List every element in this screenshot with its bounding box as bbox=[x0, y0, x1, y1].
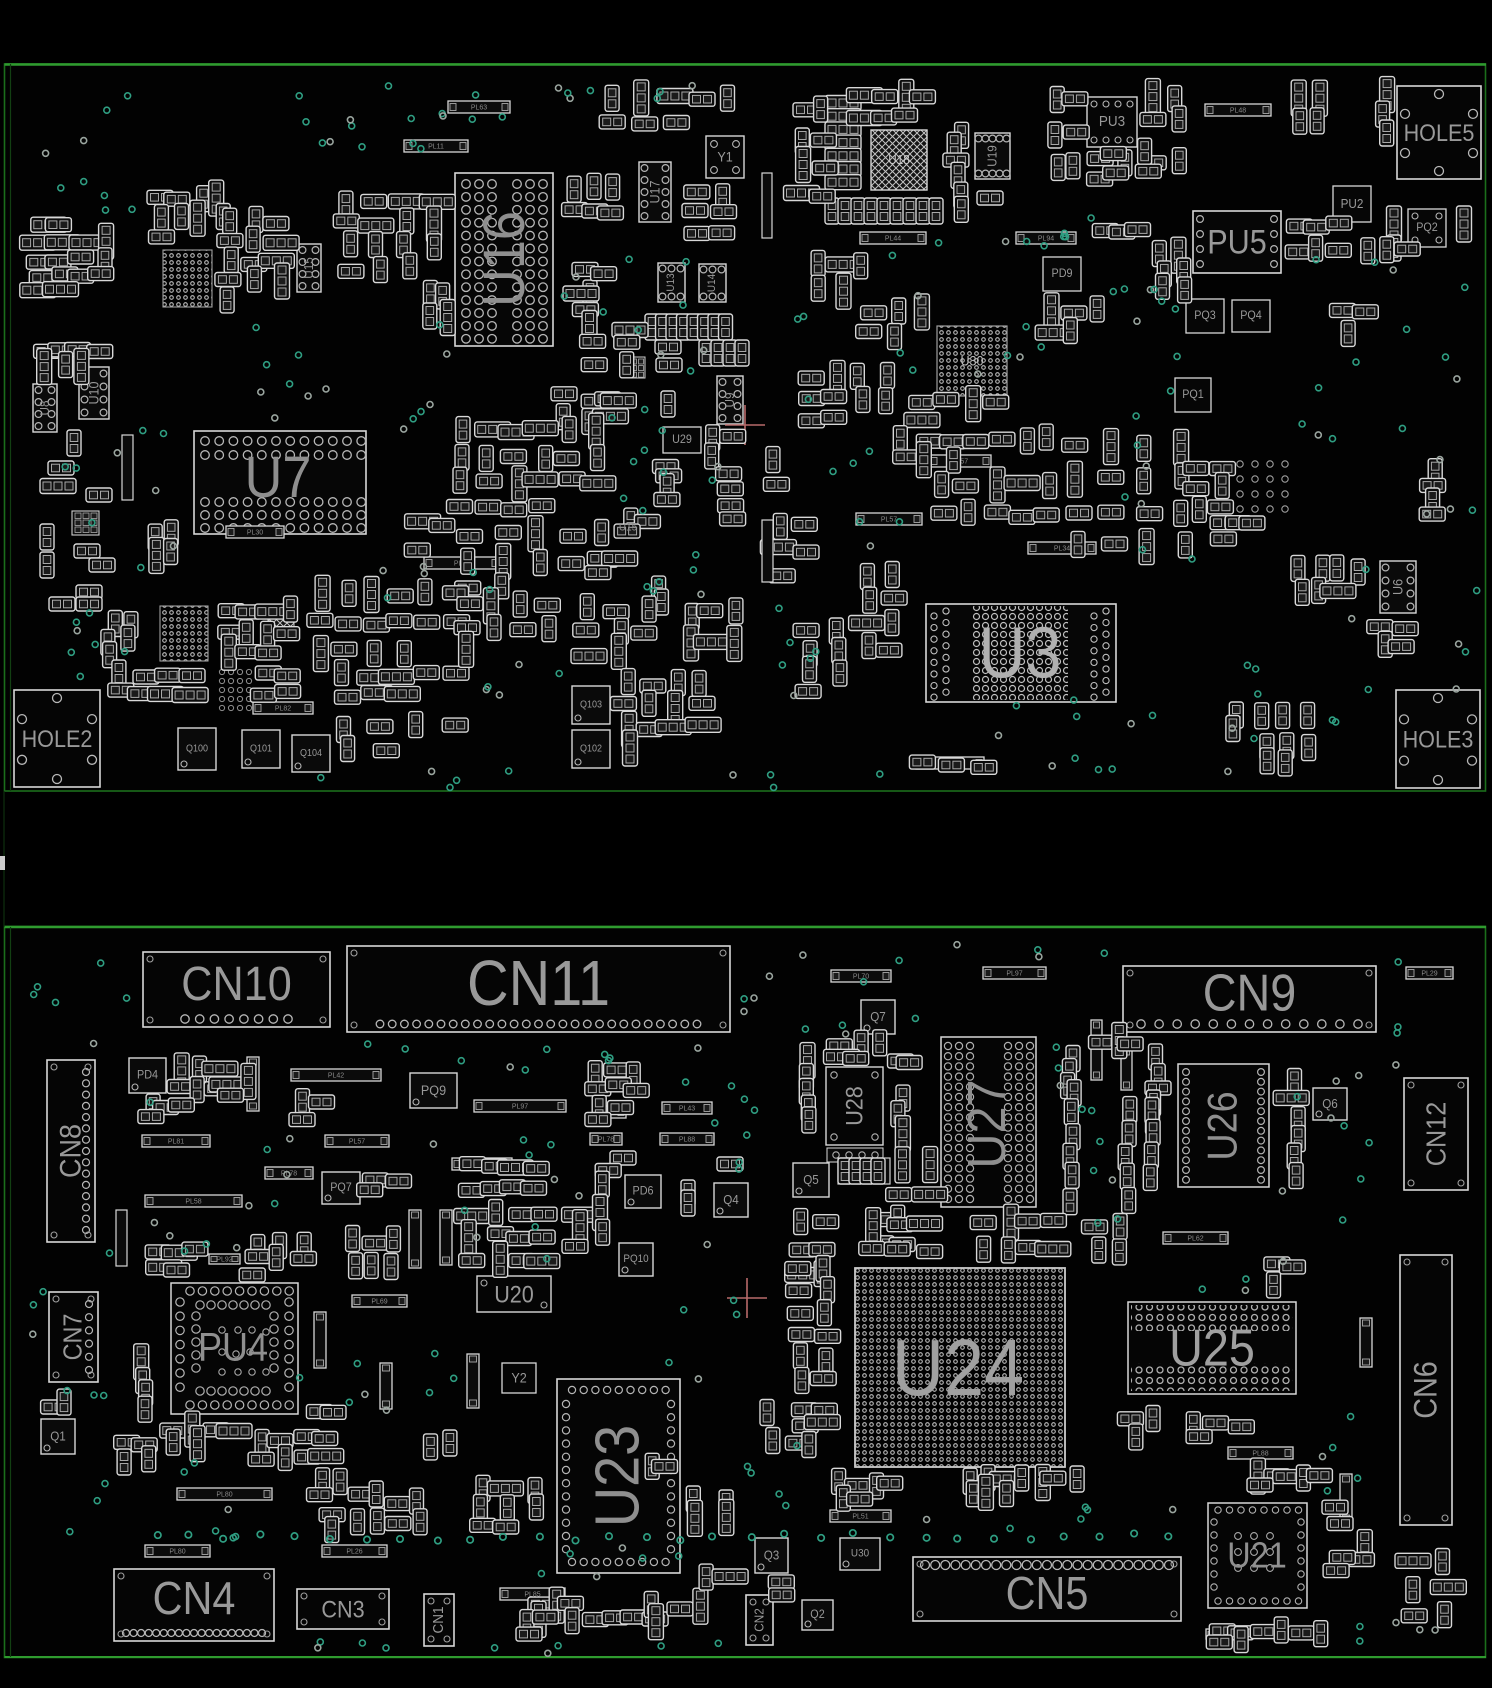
svg-text:PL26: PL26 bbox=[346, 1549, 362, 1556]
svg-text:PL62: PL62 bbox=[1187, 1236, 1203, 1243]
svg-text:PL11: PL11 bbox=[428, 144, 444, 151]
svg-text:PU3: PU3 bbox=[1099, 114, 1125, 131]
svg-text:U29: U29 bbox=[672, 434, 692, 447]
svg-text:U21: U21 bbox=[1227, 1536, 1286, 1576]
svg-text:CN6: CN6 bbox=[1408, 1361, 1444, 1419]
svg-text:Q101: Q101 bbox=[250, 743, 272, 755]
svg-text:CN1: CN1 bbox=[431, 1606, 448, 1633]
svg-text:PQ1: PQ1 bbox=[1182, 389, 1204, 402]
svg-text:PL78: PL78 bbox=[598, 1137, 614, 1144]
svg-text:PU5: PU5 bbox=[1207, 223, 1266, 261]
svg-text:CN10: CN10 bbox=[181, 957, 291, 1011]
svg-text:PD9: PD9 bbox=[1051, 268, 1072, 281]
svg-text:PL48: PL48 bbox=[1230, 108, 1246, 115]
svg-text:Q7: Q7 bbox=[870, 1010, 886, 1025]
svg-text:Q5: Q5 bbox=[803, 1173, 819, 1188]
svg-text:U6: U6 bbox=[1390, 579, 1406, 595]
svg-text:U19: U19 bbox=[985, 145, 1000, 167]
svg-text:U27: U27 bbox=[956, 1079, 1017, 1168]
svg-text:CN11: CN11 bbox=[467, 947, 610, 1018]
svg-text:U20: U20 bbox=[494, 1280, 534, 1307]
svg-text:HOLE5: HOLE5 bbox=[1404, 119, 1475, 146]
svg-text:PQ9: PQ9 bbox=[421, 1083, 446, 1099]
svg-text:PL80: PL80 bbox=[216, 1492, 232, 1499]
svg-text:CN5: CN5 bbox=[1006, 1568, 1089, 1620]
svg-text:PQ2: PQ2 bbox=[1416, 222, 1438, 235]
svg-text:CN9: CN9 bbox=[1203, 964, 1297, 1022]
svg-text:PL42: PL42 bbox=[328, 1073, 344, 1080]
svg-text:PQ3: PQ3 bbox=[1194, 310, 1216, 323]
svg-text:U26: U26 bbox=[1200, 1091, 1246, 1160]
svg-text:HOLE3: HOLE3 bbox=[1403, 725, 1474, 752]
svg-text:PL30: PL30 bbox=[247, 530, 263, 537]
svg-text:Q4: Q4 bbox=[723, 1193, 739, 1208]
svg-text:PL82: PL82 bbox=[275, 706, 291, 713]
svg-text:PL88: PL88 bbox=[1252, 1451, 1268, 1458]
svg-text:U25: U25 bbox=[1169, 1319, 1255, 1377]
svg-text:PL43: PL43 bbox=[679, 1106, 695, 1113]
svg-text:PL69: PL69 bbox=[371, 1299, 387, 1306]
svg-text:CN2: CN2 bbox=[752, 1608, 767, 1632]
svg-text:PL97: PL97 bbox=[512, 1104, 528, 1111]
svg-text:U28: U28 bbox=[840, 1086, 867, 1126]
svg-text:CN8: CN8 bbox=[54, 1124, 88, 1178]
svg-text:U24: U24 bbox=[892, 1323, 1024, 1412]
svg-text:PL34: PL34 bbox=[1054, 546, 1070, 553]
svg-text:PL92: PL92 bbox=[216, 1257, 232, 1264]
svg-text:U15: U15 bbox=[619, 522, 637, 534]
svg-text:U15: U15 bbox=[302, 257, 317, 279]
svg-text:U9: U9 bbox=[723, 392, 738, 407]
svg-text:Q104: Q104 bbox=[300, 748, 322, 760]
svg-text:U8: U8 bbox=[38, 400, 53, 415]
svg-text:PL97: PL97 bbox=[1006, 971, 1022, 978]
svg-text:U7: U7 bbox=[245, 444, 312, 509]
svg-text:PL58: PL58 bbox=[185, 1199, 201, 1206]
svg-text:PQ10: PQ10 bbox=[623, 1254, 648, 1266]
svg-text:PU4: PU4 bbox=[198, 1326, 268, 1370]
svg-text:PL80: PL80 bbox=[169, 1549, 185, 1556]
svg-text:PQ7: PQ7 bbox=[330, 1182, 352, 1195]
svg-text:PU2: PU2 bbox=[1341, 197, 1364, 212]
svg-text:PL63: PL63 bbox=[471, 105, 487, 112]
svg-text:Y2: Y2 bbox=[511, 1370, 526, 1386]
svg-text:Q3: Q3 bbox=[764, 1548, 780, 1563]
svg-text:PL88: PL88 bbox=[679, 1137, 695, 1144]
svg-text:U16: U16 bbox=[471, 211, 536, 307]
svg-text:U30: U30 bbox=[960, 353, 983, 369]
svg-text:PL57: PL57 bbox=[349, 1139, 365, 1146]
svg-text:U13: U13 bbox=[666, 273, 678, 291]
svg-text:PQ4: PQ4 bbox=[1240, 310, 1262, 323]
svg-text:PL57: PL57 bbox=[881, 517, 897, 524]
svg-text:PL44: PL44 bbox=[885, 236, 901, 243]
svg-text:U17: U17 bbox=[647, 180, 663, 203]
svg-text:PL94: PL94 bbox=[1038, 236, 1054, 243]
svg-text:CN12: CN12 bbox=[1420, 1102, 1452, 1166]
svg-text:U10: U10 bbox=[86, 381, 102, 404]
svg-text:PL51: PL51 bbox=[852, 1514, 868, 1521]
svg-text:U3: U3 bbox=[979, 613, 1062, 694]
svg-text:U14: U14 bbox=[707, 274, 719, 292]
svg-text:Q6: Q6 bbox=[1322, 1097, 1338, 1112]
svg-text:Q103: Q103 bbox=[580, 699, 602, 711]
svg-text:PL29: PL29 bbox=[1421, 971, 1437, 978]
svg-text:PL81: PL81 bbox=[168, 1139, 184, 1146]
svg-text:Y1: Y1 bbox=[717, 149, 732, 165]
svg-text:Q2: Q2 bbox=[810, 1609, 824, 1622]
svg-text:U18: U18 bbox=[888, 153, 910, 168]
svg-text:HOLE2: HOLE2 bbox=[22, 725, 93, 752]
svg-text:PD4: PD4 bbox=[137, 1069, 159, 1082]
svg-text:PD6: PD6 bbox=[632, 1185, 653, 1198]
svg-text:CN7: CN7 bbox=[59, 1314, 87, 1361]
svg-text:U30: U30 bbox=[851, 1548, 869, 1560]
svg-text:Q102: Q102 bbox=[580, 743, 602, 755]
svg-text:CN4: CN4 bbox=[153, 1573, 236, 1625]
svg-text:Q100: Q100 bbox=[186, 743, 208, 755]
svg-text:U23: U23 bbox=[584, 1425, 652, 1527]
svg-text:CN3: CN3 bbox=[321, 1595, 364, 1622]
svg-text:Q1: Q1 bbox=[50, 1429, 66, 1444]
